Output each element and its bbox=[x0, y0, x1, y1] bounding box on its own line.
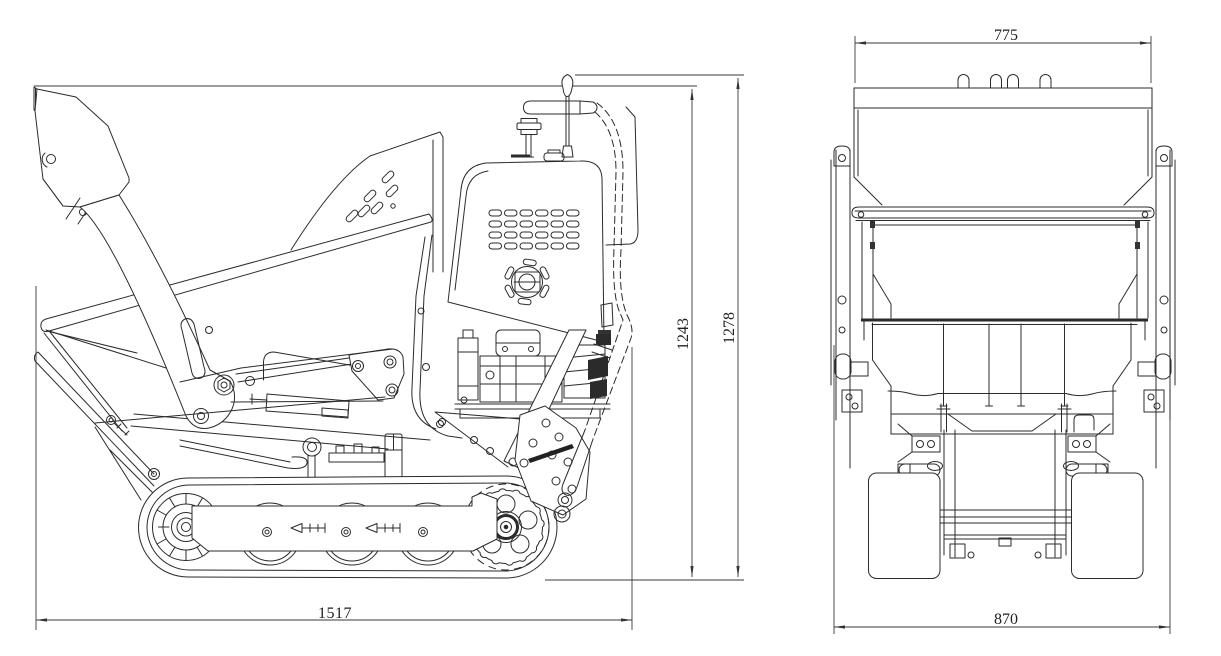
svg-text:1278: 1278 bbox=[721, 312, 738, 344]
svg-text:775: 775 bbox=[994, 27, 1018, 44]
svg-text:1517: 1517 bbox=[318, 605, 352, 622]
svg-text:1243: 1243 bbox=[675, 318, 692, 350]
svg-text:870: 870 bbox=[994, 611, 1018, 628]
